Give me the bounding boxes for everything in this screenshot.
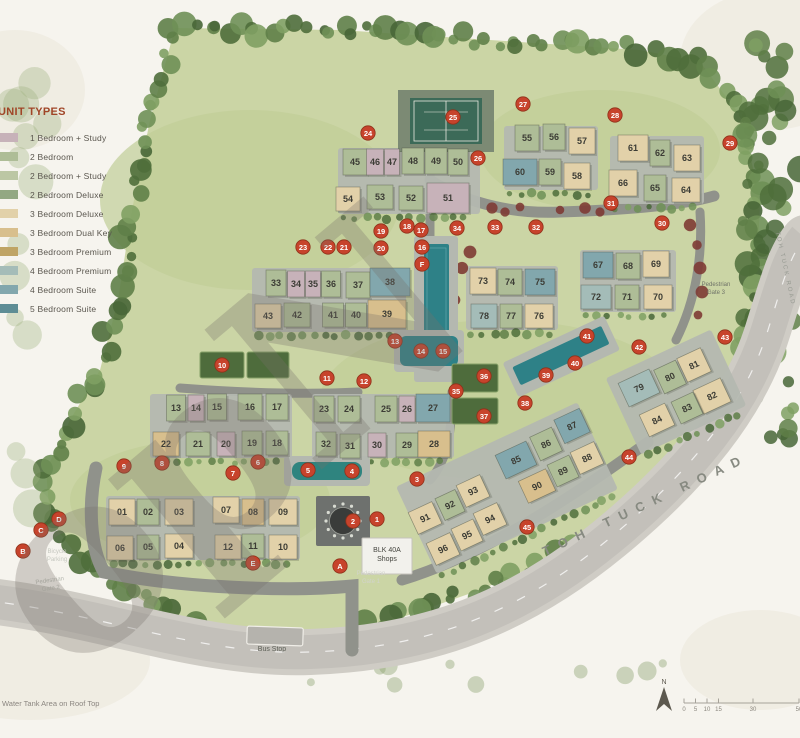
site-plan-page: 4546474849505453525155565760595861626366… <box>0 0 800 738</box>
svg-text:34: 34 <box>453 224 462 233</box>
building-number-34: 34 <box>291 279 301 289</box>
building-number-21: 21 <box>193 439 203 449</box>
building-27: 27 <box>416 394 452 424</box>
building-31: 31 <box>340 434 362 460</box>
tree <box>768 80 786 98</box>
building-number-04: 04 <box>174 541 184 551</box>
building-52: 52 <box>399 186 425 212</box>
building-number-07: 07 <box>221 505 231 515</box>
facility-marker-23: 23 <box>296 240 310 254</box>
facility-marker-6: 6 <box>251 455 265 469</box>
svg-text:16: 16 <box>418 243 426 252</box>
facility-marker-9: 9 <box>117 459 131 473</box>
building-64: 64 <box>672 178 702 204</box>
legend-label: 4 Bedroom Suite <box>30 285 96 295</box>
hedge <box>341 330 351 340</box>
hedge <box>208 457 216 465</box>
building-37: 37 <box>346 272 372 300</box>
building-51: 51 <box>427 183 471 215</box>
facility-marker-15: 15 <box>436 344 450 358</box>
building-number-73: 73 <box>478 276 488 286</box>
building-78: 78 <box>471 304 499 330</box>
building-66: 66 <box>609 170 639 198</box>
svg-text:44: 44 <box>625 453 634 462</box>
facility-marker-7: 7 <box>226 466 240 480</box>
legend-item-1bs: 1 Bedroom + Study <box>0 128 160 147</box>
building-12: 12 <box>215 535 243 561</box>
shrub <box>516 203 525 212</box>
svg-text:33: 33 <box>491 223 499 232</box>
svg-text:20: 20 <box>377 244 385 253</box>
building-56: 56 <box>543 124 567 152</box>
building-49: 49 <box>425 148 449 176</box>
tree <box>742 179 752 189</box>
svg-text:28: 28 <box>611 111 619 120</box>
tree <box>192 20 203 31</box>
hedge <box>646 204 651 209</box>
legend-item-4bp: 4 Bedroom Premium <box>0 261 160 280</box>
legend-label: 4 Bedroom Premium <box>30 266 111 276</box>
legend-label: 3 Bedroom Deluxe <box>30 209 104 219</box>
svg-text:12: 12 <box>360 377 368 386</box>
building-70: 70 <box>644 285 674 311</box>
gate-marker-B: B <box>16 544 30 558</box>
hedge <box>351 216 357 222</box>
legend-swatch-3bd <box>0 209 18 218</box>
building-number-48: 48 <box>408 156 418 166</box>
building-number-06: 06 <box>115 543 125 553</box>
hedge <box>491 330 500 339</box>
building-number-77: 77 <box>506 311 516 321</box>
svg-text:19: 19 <box>377 227 385 236</box>
hedge <box>287 332 296 341</box>
hedge <box>527 188 536 197</box>
legend-item-3bdk: 3 Bedroom Dual Key <box>0 223 160 242</box>
legend-swatch-3bp <box>0 247 18 256</box>
building-number-36: 36 <box>326 279 336 289</box>
building-08: 08 <box>242 499 266 527</box>
svg-text:5: 5 <box>306 466 310 475</box>
tree <box>760 183 787 210</box>
building-number-65: 65 <box>650 183 660 193</box>
tree <box>7 442 26 461</box>
tree <box>57 440 66 449</box>
hedge <box>396 214 403 221</box>
legend-swatch-5bs <box>0 304 18 313</box>
building-42: 42 <box>284 303 312 329</box>
svg-text:37: 37 <box>480 412 488 421</box>
tree <box>748 153 769 174</box>
building-73: 73 <box>470 268 498 296</box>
facility-marker-42: 42 <box>632 340 646 354</box>
tree <box>700 68 721 89</box>
hedge <box>205 558 214 567</box>
tree <box>154 72 169 87</box>
facility-marker-1: 1 <box>370 512 384 526</box>
hedge <box>283 561 290 568</box>
hedge <box>667 205 676 214</box>
facility-marker-45: 45 <box>520 520 534 534</box>
label-bus-stop: Bus Stop <box>258 646 287 653</box>
building-69: 69 <box>643 251 671 279</box>
building-63: 63 <box>674 145 702 173</box>
hedge <box>507 191 512 196</box>
tree <box>322 27 334 39</box>
building-number-19: 19 <box>247 438 257 448</box>
hedge <box>546 332 553 339</box>
hedge <box>522 330 532 340</box>
svg-text:Bicycle: Bicycle <box>47 549 67 555</box>
tree <box>53 530 66 543</box>
building-34: 34 <box>288 271 307 299</box>
svg-text:10: 10 <box>218 361 226 370</box>
tree <box>507 39 522 54</box>
facility-marker-18: 18 <box>400 219 414 233</box>
building-number-13: 13 <box>171 403 181 413</box>
facility-marker-16: 16 <box>415 240 429 254</box>
building-number-17: 17 <box>272 402 282 412</box>
hedge <box>175 562 182 569</box>
building-number-35: 35 <box>308 279 318 289</box>
building-number-55: 55 <box>522 133 532 143</box>
building-40: 40 <box>346 303 369 329</box>
building-02: 02 <box>137 499 161 527</box>
building-number-51: 51 <box>443 193 453 203</box>
building-74: 74 <box>498 269 524 297</box>
building-number-38: 38 <box>385 277 395 287</box>
building-48: 48 <box>402 148 426 176</box>
hedge <box>153 561 162 570</box>
hedge <box>364 332 373 341</box>
building-58: 58 <box>564 163 592 191</box>
tree <box>779 419 798 438</box>
svg-text:25: 25 <box>449 113 457 122</box>
hedge <box>416 214 425 223</box>
hedge <box>218 458 224 464</box>
tree <box>776 43 794 61</box>
legend-item-2b: 2 Bedroom <box>0 147 160 166</box>
svg-text:27: 27 <box>519 100 527 109</box>
building-number-72: 72 <box>591 292 601 302</box>
hedge <box>273 457 280 464</box>
building-number-25: 25 <box>381 404 391 414</box>
legend-item-2bd: 2 Bedroom Deluxe <box>0 185 160 204</box>
facility-marker-27: 27 <box>516 97 530 111</box>
facility-marker-33: 33 <box>488 220 502 234</box>
hedge <box>311 332 318 339</box>
building-number-37: 37 <box>353 280 363 290</box>
legend-label: 2 Bedroom <box>30 152 73 162</box>
svg-text:42: 42 <box>635 343 643 352</box>
building-number-28: 28 <box>429 439 439 449</box>
shrub <box>692 240 702 250</box>
facility-marker-11: 11 <box>320 371 334 385</box>
hedge <box>478 332 484 338</box>
svg-text:E: E <box>250 559 255 568</box>
hedge <box>618 312 624 318</box>
gate-marker-E: E <box>246 556 260 570</box>
svg-text:17: 17 <box>417 226 425 235</box>
building-number-63: 63 <box>682 153 692 163</box>
building-05: 05 <box>137 535 161 561</box>
building-24: 24 <box>338 396 362 424</box>
facility-marker-5: 5 <box>301 463 315 477</box>
legend-label: 5 Bedroom Suite <box>30 304 96 314</box>
building-number-29: 29 <box>402 440 412 450</box>
building-number-18: 18 <box>272 438 282 448</box>
tree <box>159 49 169 59</box>
tree <box>477 32 490 45</box>
building-number-10: 10 <box>278 542 288 552</box>
hedge <box>679 205 685 211</box>
building-60: 60 <box>503 159 539 187</box>
building-number-33: 33 <box>271 278 281 288</box>
hedge <box>266 332 275 341</box>
svg-text:36: 36 <box>480 372 488 381</box>
hedge <box>585 193 591 199</box>
building-number-42: 42 <box>292 310 302 320</box>
facility-marker-36: 36 <box>477 369 491 383</box>
hedge <box>583 312 589 318</box>
svg-text:A: A <box>337 562 343 571</box>
building-number-41: 41 <box>328 310 338 320</box>
building-32: 32 <box>316 432 338 458</box>
hedge <box>382 215 391 224</box>
svg-text:41: 41 <box>583 332 591 341</box>
shrub <box>684 219 696 231</box>
building-number-43: 43 <box>263 311 273 321</box>
shrub <box>694 311 703 320</box>
shrub <box>486 202 497 213</box>
gate-marker-A: A <box>333 559 347 573</box>
building-67: 67 <box>583 252 615 280</box>
tree <box>102 342 122 362</box>
tree <box>106 318 123 335</box>
hedge <box>196 459 201 464</box>
facility-marker-28: 28 <box>608 108 622 122</box>
building-14: 14 <box>188 395 206 423</box>
hedge <box>298 331 306 339</box>
building-04: 04 <box>165 534 195 560</box>
hedge <box>376 332 383 339</box>
building-number-11: 11 <box>248 541 258 551</box>
tree <box>735 251 760 276</box>
svg-text:14: 14 <box>417 347 426 356</box>
building-number-61: 61 <box>628 143 638 153</box>
building-54: 54 <box>336 187 362 213</box>
tree <box>209 21 220 32</box>
building-06: 06 <box>107 536 135 562</box>
facility-marker-19: 19 <box>374 224 388 238</box>
building-50: 50 <box>448 149 470 177</box>
hedge <box>648 314 654 320</box>
facility-marker-21: 21 <box>337 240 351 254</box>
shrub <box>464 246 477 259</box>
building-number-69: 69 <box>651 259 661 269</box>
building-59: 59 <box>539 159 563 187</box>
building-35: 35 <box>306 271 323 299</box>
tree <box>445 660 454 669</box>
building-number-67: 67 <box>593 260 603 270</box>
tree <box>496 42 505 51</box>
facility-marker-29: 29 <box>723 136 737 150</box>
tree <box>387 677 402 692</box>
tree <box>535 39 547 51</box>
svg-text:Parking: Parking <box>47 557 67 563</box>
internal-driveway <box>180 388 358 393</box>
building-number-24: 24 <box>344 404 354 414</box>
legend-label: 3 Bedroom Dual Key <box>30 228 112 238</box>
facility-marker-34: 34 <box>450 221 464 235</box>
building-55: 55 <box>515 125 541 153</box>
shrub <box>579 202 591 214</box>
svg-text:F: F <box>420 260 425 269</box>
building-15: 15 <box>208 394 229 422</box>
hedge <box>639 313 647 321</box>
tennis-court <box>398 90 494 152</box>
svg-text:13: 13 <box>391 337 399 346</box>
building-number-16: 16 <box>245 402 255 412</box>
legend-swatch-2bs <box>0 171 18 180</box>
hedge <box>467 331 474 338</box>
facility-marker-32: 32 <box>529 220 543 234</box>
legend-label: 3 Bedroom Premium <box>30 247 111 257</box>
facility-marker-13: 13 <box>388 334 402 348</box>
building-number-56: 56 <box>549 132 559 142</box>
building-number-70: 70 <box>653 292 663 302</box>
building-number-09: 09 <box>278 507 288 517</box>
hedge <box>322 332 329 339</box>
facility-marker-37: 37 <box>477 409 491 423</box>
gate-marker-F: F <box>415 257 429 271</box>
north-label: N <box>661 679 666 686</box>
building-36: 36 <box>322 271 343 299</box>
facility-marker-22: 22 <box>321 240 335 254</box>
building-21: 21 <box>186 432 212 458</box>
hedge <box>164 560 173 569</box>
svg-text:43: 43 <box>721 333 729 342</box>
tree <box>446 594 455 603</box>
svg-text:29: 29 <box>726 139 734 148</box>
building-77: 77 <box>500 304 524 330</box>
building-number-31: 31 <box>345 441 355 451</box>
hedge <box>626 314 632 320</box>
building-number-52: 52 <box>406 193 416 203</box>
building-number-30: 30 <box>372 440 382 450</box>
facility-marker-26: 26 <box>471 151 485 165</box>
hedge <box>142 562 148 568</box>
tree <box>432 28 446 42</box>
svg-text:3: 3 <box>415 475 419 484</box>
svg-text:22: 22 <box>324 243 332 252</box>
hedge <box>275 331 283 339</box>
tree <box>638 662 657 681</box>
shrub <box>556 206 565 215</box>
building-47: 47 <box>385 149 402 177</box>
building-number-45: 45 <box>350 157 360 167</box>
building-19: 19 <box>242 431 264 457</box>
building-number-74: 74 <box>505 277 515 287</box>
building-number-76: 76 <box>534 311 544 321</box>
hedge <box>241 458 247 464</box>
svg-text:31: 31 <box>607 199 615 208</box>
building-16: 16 <box>238 394 264 422</box>
svg-text:D: D <box>56 515 62 524</box>
legend-item-5bs: 5 Bedroom Suite <box>0 299 160 318</box>
svg-text:7: 7 <box>231 469 235 478</box>
building-28: 28 <box>418 431 452 459</box>
building-62: 62 <box>650 140 672 168</box>
building-22: 22 <box>153 432 181 458</box>
building-number-39: 39 <box>382 309 392 319</box>
hedge <box>374 213 382 221</box>
building-number-46: 46 <box>370 157 380 167</box>
building-number-03: 03 <box>174 507 184 517</box>
building-number-57: 57 <box>577 136 587 146</box>
tree <box>300 21 312 33</box>
svg-text:26: 26 <box>474 154 482 163</box>
building-17: 17 <box>266 394 290 422</box>
tree <box>344 28 356 40</box>
building-number-08: 08 <box>248 507 258 517</box>
shrub <box>500 207 509 216</box>
facility-marker-31: 31 <box>604 196 618 210</box>
facility-marker-41: 41 <box>580 329 594 343</box>
svg-text:8: 8 <box>160 459 164 468</box>
svg-text:1: 1 <box>375 515 379 524</box>
building-number-71: 71 <box>622 292 632 302</box>
building-26: 26 <box>399 396 417 424</box>
building-number-22: 22 <box>161 439 171 449</box>
legend-label: 1 Bedroom + Study <box>30 133 106 143</box>
tree <box>593 38 609 54</box>
building-68: 68 <box>616 253 642 281</box>
scale-tick-label: 15 <box>715 707 722 713</box>
svg-text:11: 11 <box>323 374 331 383</box>
svg-text:Gate 1: Gate 1 <box>362 579 381 585</box>
tree <box>616 667 634 685</box>
building-number-66: 66 <box>618 178 628 188</box>
garden-plot <box>452 398 498 424</box>
building-13: 13 <box>167 395 188 423</box>
hedge <box>331 333 338 340</box>
svg-text:38: 38 <box>521 399 529 408</box>
tree <box>453 21 473 41</box>
gate-marker-D: D <box>52 512 66 526</box>
facility-marker-38: 38 <box>518 396 532 410</box>
facility-marker-8: 8 <box>155 456 169 470</box>
tree <box>783 376 794 387</box>
building-number-49: 49 <box>431 156 441 166</box>
building-number-53: 53 <box>375 192 385 202</box>
building-29: 29 <box>396 433 420 459</box>
building-61: 61 <box>618 135 650 163</box>
facility-marker-4: 4 <box>345 464 359 478</box>
svg-text:Shops: Shops <box>377 556 397 563</box>
building-20: 20 <box>217 432 237 458</box>
facility-marker-44: 44 <box>622 450 636 464</box>
hedge <box>402 458 410 466</box>
legend-swatch-2bd <box>0 190 18 199</box>
tree <box>738 216 748 226</box>
legend-swatch-4bs <box>0 285 18 294</box>
facility-marker-35: 35 <box>449 384 463 398</box>
svg-text:6: 6 <box>256 458 260 467</box>
shrub <box>694 262 707 275</box>
building-number-75: 75 <box>535 277 545 287</box>
hedge <box>537 191 546 200</box>
building-number-47: 47 <box>387 157 397 167</box>
